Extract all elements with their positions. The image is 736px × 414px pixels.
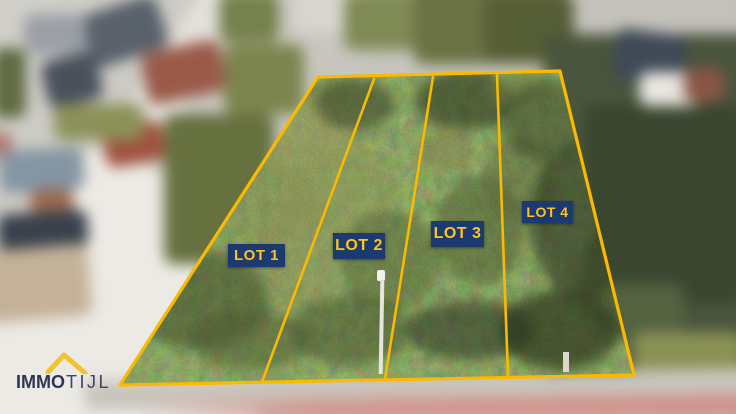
lot-label-2: LOT 2 <box>333 233 385 259</box>
logo-text-light: TIJL <box>66 372 111 392</box>
parcel-vegetation <box>100 55 660 400</box>
logo-text: IMMOTIJL <box>16 372 111 393</box>
lot-label-3: LOT 3 <box>431 221 484 247</box>
aerial-lot-photo: LOT 1 LOT 2 LOT 3 LOT 4 IMMOTIJL <box>0 0 736 414</box>
lot-label-1: LOT 1 <box>228 244 285 267</box>
house-roof-icon <box>45 352 89 374</box>
logo-immotijl: IMMOTIJL <box>16 350 146 396</box>
lot-label-4: LOT 4 <box>522 201 573 223</box>
logo-text-bold: IMMO <box>16 372 65 392</box>
survey-post <box>563 352 569 372</box>
